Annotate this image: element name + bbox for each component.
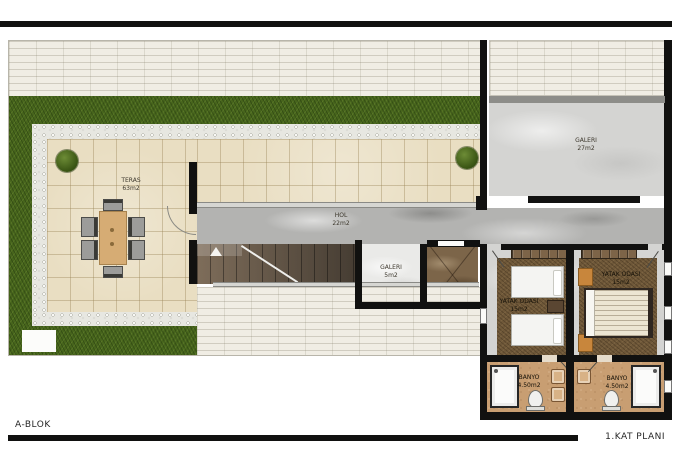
- shower-head-icon: [653, 369, 657, 373]
- wall-segment: [189, 162, 197, 214]
- dining-chair: [81, 240, 98, 260]
- paving-area-top-right: [489, 40, 665, 96]
- plan-title: 1.KAT PLANI: [590, 432, 665, 442]
- room-label-teras: TERAS 63m2: [101, 177, 161, 192]
- table-item: [110, 228, 114, 232]
- wall-segment: [476, 196, 487, 210]
- tree-symbol: [456, 147, 478, 169]
- wall-segment: [480, 244, 487, 420]
- wall-segment: [528, 196, 640, 203]
- pebble-border-left: [32, 139, 47, 326]
- toilet-tank: [602, 406, 621, 411]
- wall-segment: [420, 244, 427, 309]
- dining-table: [99, 211, 127, 265]
- room-label-area: 22m2: [332, 220, 349, 227]
- pillow-symbol: [586, 290, 595, 336]
- dining-chair: [128, 217, 145, 237]
- wall-segment: [480, 40, 487, 208]
- room-label-text: HOL: [335, 212, 348, 219]
- window-opening: [664, 340, 672, 354]
- grass-area-top: [9, 96, 483, 124]
- dining-chair: [128, 240, 145, 260]
- shower-head-icon: [494, 369, 498, 373]
- room-label-area: 4.50m2: [605, 383, 628, 390]
- bed-symbol: [511, 314, 564, 346]
- grass-area-left: [9, 124, 32, 355]
- room-label-galeri-large: GALERI 27m2: [556, 137, 616, 152]
- elevator-door-opening: [438, 241, 464, 246]
- room-label-banyo-right: BANYO 4.50m2: [587, 375, 647, 390]
- pebble-border-bottom: [32, 312, 200, 326]
- room-label-hol: HOL 22m2: [311, 212, 371, 227]
- room-label-text: YATAK ODASI: [602, 271, 641, 278]
- room-label-banyo-left: BANYO 4.50m2: [499, 374, 559, 389]
- dining-chair: [103, 199, 123, 211]
- pillow-symbol: [553, 270, 562, 296]
- wall-segment: [566, 250, 574, 357]
- nightstand-symbol: [547, 300, 564, 313]
- tree-symbol: [56, 150, 78, 172]
- pebble-border-top: [32, 124, 483, 139]
- room-label-yatak-right: YATAK ODASI 15m2: [591, 271, 651, 286]
- room-label-text: TERAS: [121, 177, 140, 184]
- wall-segment: [566, 362, 574, 412]
- floor-plan: TERAS 63m2 HOL 22m2 GALERI 5m2 GALERI 27…: [0, 0, 675, 460]
- sink-symbol: [551, 387, 565, 402]
- room-label-text: BANYO: [519, 374, 540, 381]
- footer-bar: [8, 435, 578, 441]
- dining-chair: [81, 217, 98, 237]
- wall-segment: [664, 40, 672, 420]
- table-item: [110, 242, 114, 246]
- room-label-yatak-left: YATAK ODASI 15m2: [489, 298, 549, 313]
- room-label-text: GALERI: [575, 137, 597, 144]
- hall-area: [197, 208, 664, 244]
- door-opening: [487, 244, 501, 250]
- stair-arrow-icon: [210, 247, 222, 256]
- window-opening: [664, 380, 672, 393]
- toilet-tank: [526, 406, 545, 411]
- room-label-text: GALERI: [380, 264, 402, 271]
- room-label-text: YATAK ODASI: [500, 298, 539, 305]
- terrace-area-upper: [197, 139, 483, 205]
- room-label-text: BANYO: [607, 375, 628, 382]
- room-label-area: 63m2: [122, 185, 139, 192]
- room-label-area: 27m2: [577, 145, 594, 152]
- window-opening: [664, 306, 672, 320]
- wall-segment: [482, 412, 672, 420]
- door-opening: [542, 355, 557, 362]
- block-label: A-BLOK: [15, 420, 51, 430]
- paving-area-top-left: [9, 41, 483, 96]
- room-label-galeri-small: GALERI 5m2: [361, 264, 421, 279]
- door-opening: [597, 355, 612, 362]
- room-label-area: 4.50m2: [517, 382, 540, 389]
- wall-segment: [489, 96, 665, 103]
- wall-segment: [482, 244, 668, 250]
- wall-segment: [189, 240, 197, 284]
- wall-segment: [482, 355, 668, 362]
- room-label-area: 5m2: [384, 272, 397, 279]
- pillow-symbol: [553, 318, 562, 344]
- room-label-area: 15m2: [612, 279, 629, 286]
- dining-chair: [103, 266, 123, 278]
- garden-pad: [22, 330, 56, 352]
- door-opening: [648, 244, 662, 250]
- bed-symbol: [511, 266, 564, 298]
- paving-area-south: [197, 287, 484, 355]
- room-label-area: 15m2: [510, 306, 527, 313]
- window-opening: [664, 262, 672, 276]
- window-opening: [480, 308, 487, 324]
- wall-segment: [0, 21, 672, 27]
- double-bed-symbol: [584, 288, 653, 338]
